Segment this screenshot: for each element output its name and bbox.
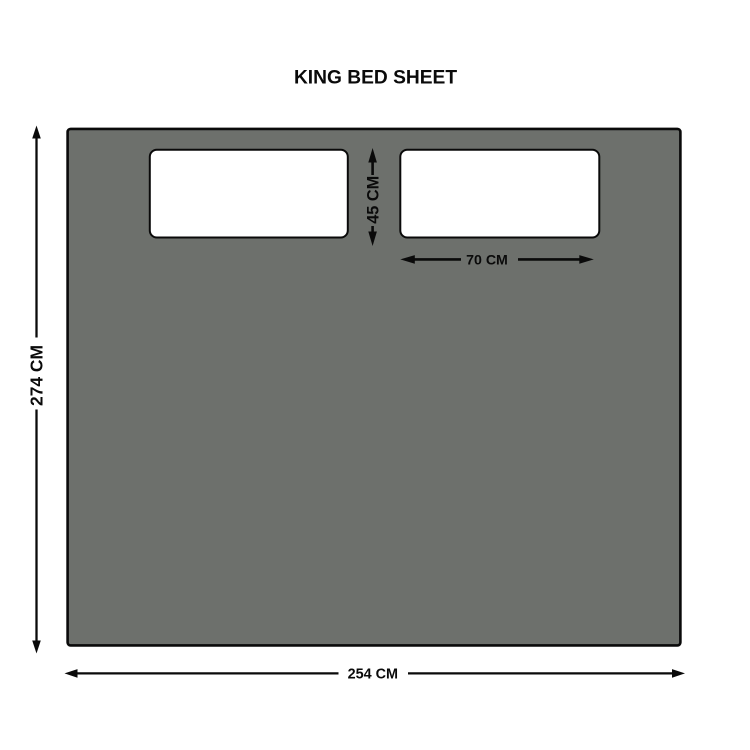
svg-text:70 CM: 70 CM [466, 253, 508, 269]
svg-text:274 CM: 274 CM [27, 345, 47, 406]
svg-text:45 CM: 45 CM [364, 176, 382, 224]
svg-text:254 CM: 254 CM [348, 667, 398, 683]
svg-text:KING BED SHEET: KING BED SHEET [294, 67, 457, 88]
